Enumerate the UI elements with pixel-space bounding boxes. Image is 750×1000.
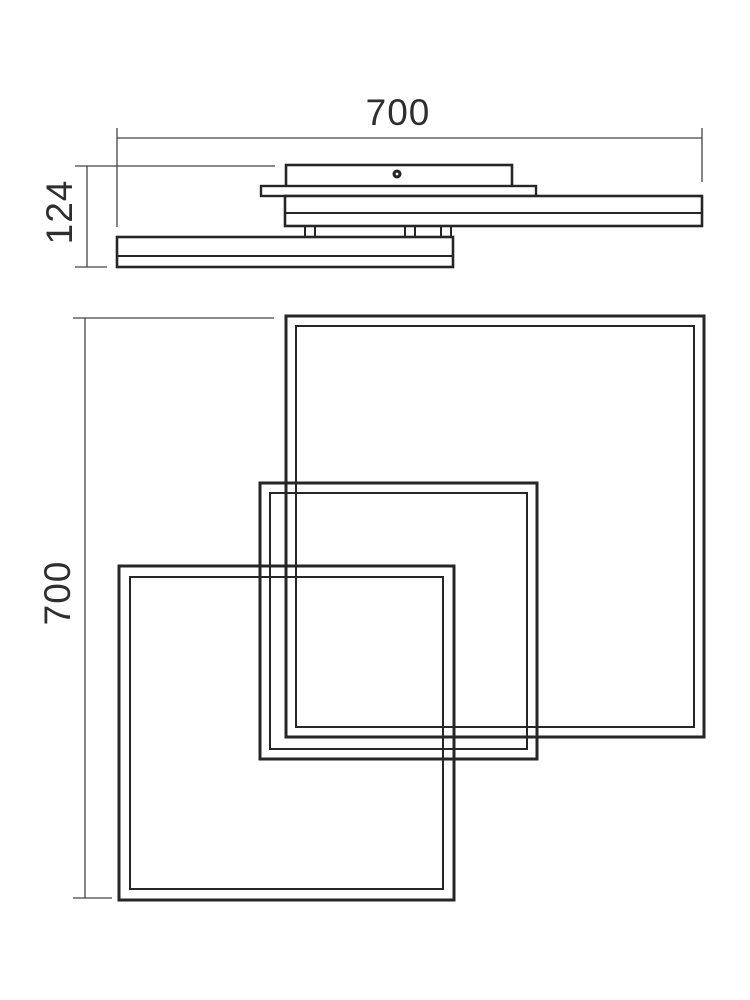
standoff-0 (305, 226, 315, 237)
frame-b-profile (261, 186, 536, 196)
drawing-canvas (0, 0, 750, 1000)
frame-a-profile (285, 196, 702, 226)
plan-large-square-outer (286, 316, 704, 737)
technical-drawing-page: 700 124 700 (0, 0, 750, 1000)
canopy-screw-hole (396, 173, 399, 176)
plan-medium-square-inner (270, 493, 527, 749)
side-height-dimension-label: 124 (38, 152, 82, 272)
standoff-1 (405, 226, 415, 237)
side-width-dimension-label: 700 (338, 91, 458, 135)
standoff-2 (441, 226, 451, 237)
frame-c-profile (117, 237, 453, 267)
plan-medium-square-outer (260, 483, 537, 759)
plan-large-square-inner (296, 326, 694, 727)
plan-height-dimension-label: 700 (36, 533, 80, 653)
